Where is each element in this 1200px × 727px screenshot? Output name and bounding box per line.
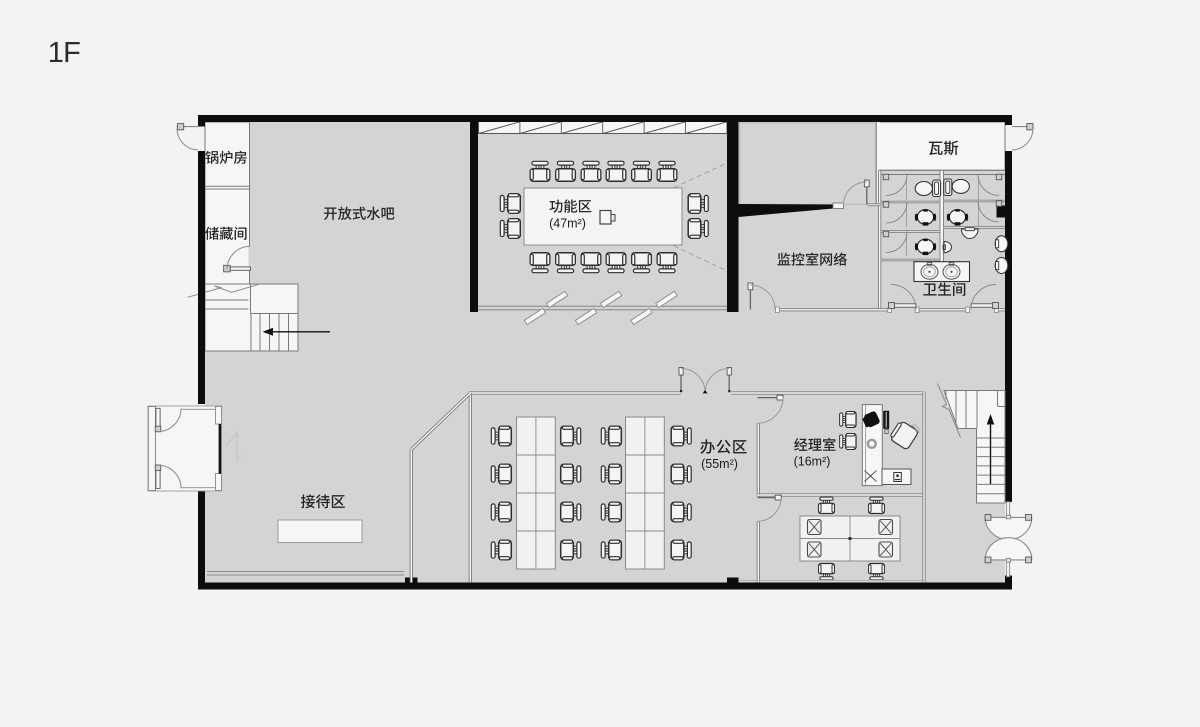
svg-text:(16m²): (16m²) bbox=[794, 454, 831, 468]
svg-text:(47m²): (47m²) bbox=[549, 216, 586, 230]
svg-text:1F: 1F bbox=[48, 37, 80, 69]
svg-text:(55m²): (55m²) bbox=[701, 457, 738, 471]
